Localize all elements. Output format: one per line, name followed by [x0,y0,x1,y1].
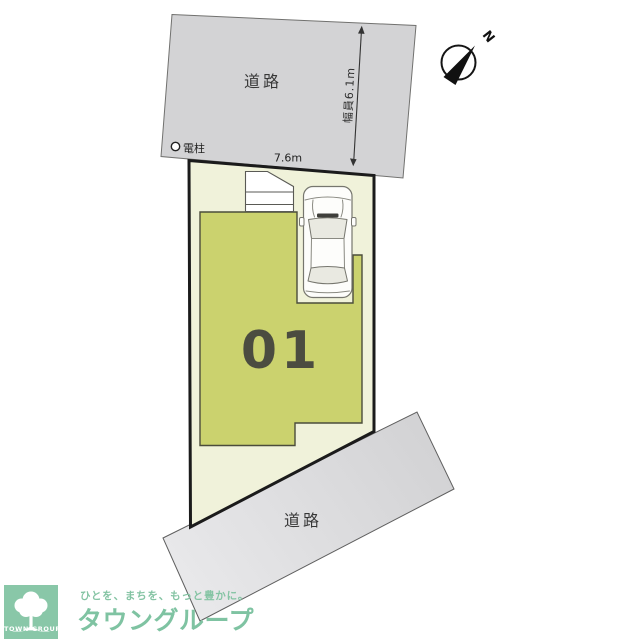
car-icon [300,187,357,298]
logo-brand-name: タウングループ [77,601,254,637]
compass-icon [442,46,476,86]
bottom-road-label: 道路 [284,507,322,531]
logo-badge-text: TOWN GROUP [4,625,58,633]
utility-pole-label: 電柱 [183,140,205,156]
lot-number-label: 01 [241,321,321,381]
site-plan: 道路 幅員6.1m 電柱 7.6m 01 道路 N ひとを、まちを、もっと豊かに… [0,0,640,640]
site-plan-drawing [0,0,640,640]
top-road-label: 道路 [244,68,282,92]
utility-pole-icon [171,142,179,150]
road-width-label: 幅員6.1m [340,67,359,124]
frontage-label: 7.6m [274,152,302,165]
